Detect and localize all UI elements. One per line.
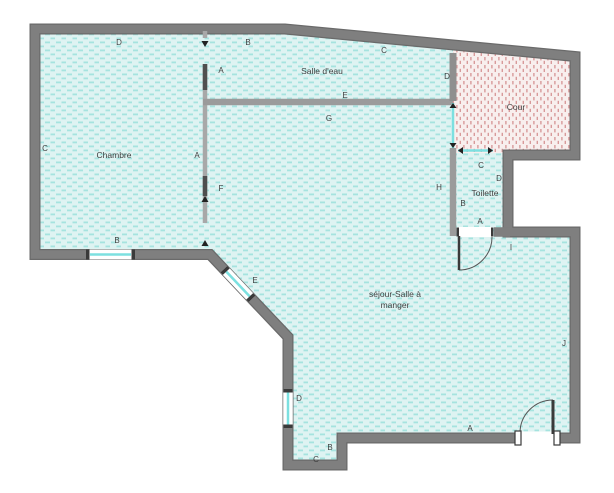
wall-marker: B: [327, 443, 332, 452]
floor-area: [40, 33, 578, 461]
floor-plan: Chambre Salle d'eau Cour Toilette séjour…: [0, 0, 614, 493]
wall-marker: C: [42, 144, 48, 153]
cour-floor: [453, 49, 572, 153]
wall-marker: E: [342, 91, 347, 100]
wall-marker: D: [496, 174, 502, 183]
wall-marker: D: [296, 394, 302, 403]
wall-marker: A: [194, 151, 200, 160]
wall-marker: B: [114, 236, 119, 245]
wall-marker: C: [313, 455, 319, 464]
wall-marker: A: [218, 66, 224, 75]
room-label-salle-deau: Salle d'eau: [301, 66, 343, 76]
wall-marker: G: [326, 114, 332, 123]
wall-marker: C: [478, 161, 484, 170]
wall-marker: A: [477, 217, 483, 226]
room-label-sejour-line2: manger: [381, 300, 410, 310]
wall-marker: C: [381, 46, 387, 55]
wall-marker: I: [510, 243, 512, 252]
window-b: [86, 250, 135, 260]
room-label-toilette: Toilette: [472, 188, 499, 198]
wall-marker: D: [116, 38, 122, 47]
wall-marker: B: [460, 199, 465, 208]
wall-marker: J: [562, 339, 566, 348]
wall-marker: D: [444, 72, 450, 81]
wall-marker: A: [467, 424, 473, 433]
wall-marker: E: [252, 276, 257, 285]
exterior-notch: [504, 151, 578, 236]
room-label-sejour-line1: séjour-Salle à: [369, 289, 421, 299]
wall-marker: B: [245, 38, 250, 47]
room-label-cour: Cour: [507, 102, 526, 112]
room-label-chambre: Chambre: [97, 150, 132, 160]
wall-marker: H: [436, 183, 442, 192]
window-d: [283, 389, 293, 428]
wall-marker: F: [219, 184, 224, 193]
floor-plan-canvas: Chambre Salle d'eau Cour Toilette séjour…: [0, 0, 614, 493]
